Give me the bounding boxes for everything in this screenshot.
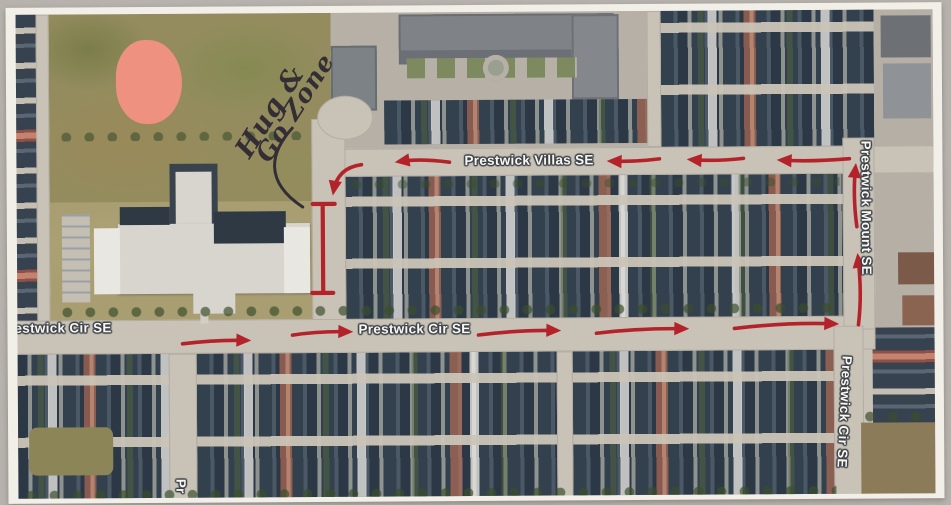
lot-tree-row	[863, 409, 936, 421]
northeast-house-block	[661, 10, 875, 147]
label-prestwick-cir-left-partial: estwick Cir SE	[16, 320, 112, 336]
brown-roof-building-2	[902, 295, 934, 325]
aerial-map: Prestwick Villas SE Prestwick Cir SE est…	[16, 9, 936, 499]
road-north-gap-vertical	[647, 11, 662, 147]
map-content: Prestwick Villas SE Prestwick Cir SE est…	[16, 9, 936, 499]
school-west-wing	[94, 228, 120, 294]
label-prestwick-mount: Prestwick Mount SE	[858, 141, 874, 276]
road-south-mid-vertical	[557, 351, 574, 497]
school-parking	[62, 214, 91, 302]
label-bottom-partial: Pr	[173, 479, 188, 494]
southeast-house-block	[573, 350, 835, 497]
photo-backdrop: Prestwick Villas SE Prestwick Cir SE est…	[0, 0, 951, 505]
commercial-roof-1	[881, 15, 931, 57]
school-east-wing	[284, 227, 310, 293]
condo-row-south	[384, 99, 654, 145]
condo-roof-east	[572, 14, 620, 99]
west-house-column	[16, 15, 38, 343]
vacant-brown-lot	[861, 422, 935, 497]
southwest-house-block	[16, 354, 170, 499]
school-roof-dark-west	[120, 207, 170, 225]
mid-house-block	[346, 174, 844, 321]
courtyard-circle	[483, 55, 509, 81]
road-south-center-vertical	[169, 354, 198, 499]
label-prestwick-villas: Prestwick Villas SE	[464, 152, 593, 168]
school-roof-dark-east	[214, 211, 286, 243]
brown-roof-building-1	[898, 252, 934, 284]
south-greenspace	[29, 427, 113, 476]
label-prestwick-cir-center: Prestwick Cir SE	[358, 321, 470, 337]
map-photo-paper: Prestwick Villas SE Prestwick Cir SE est…	[5, 2, 944, 504]
ball-diamond	[116, 40, 183, 124]
road-culdesac-loop	[317, 96, 373, 140]
commercial-roof-2	[883, 63, 931, 118]
road-west-vertical	[36, 15, 51, 345]
south-center-house-block	[197, 352, 558, 499]
